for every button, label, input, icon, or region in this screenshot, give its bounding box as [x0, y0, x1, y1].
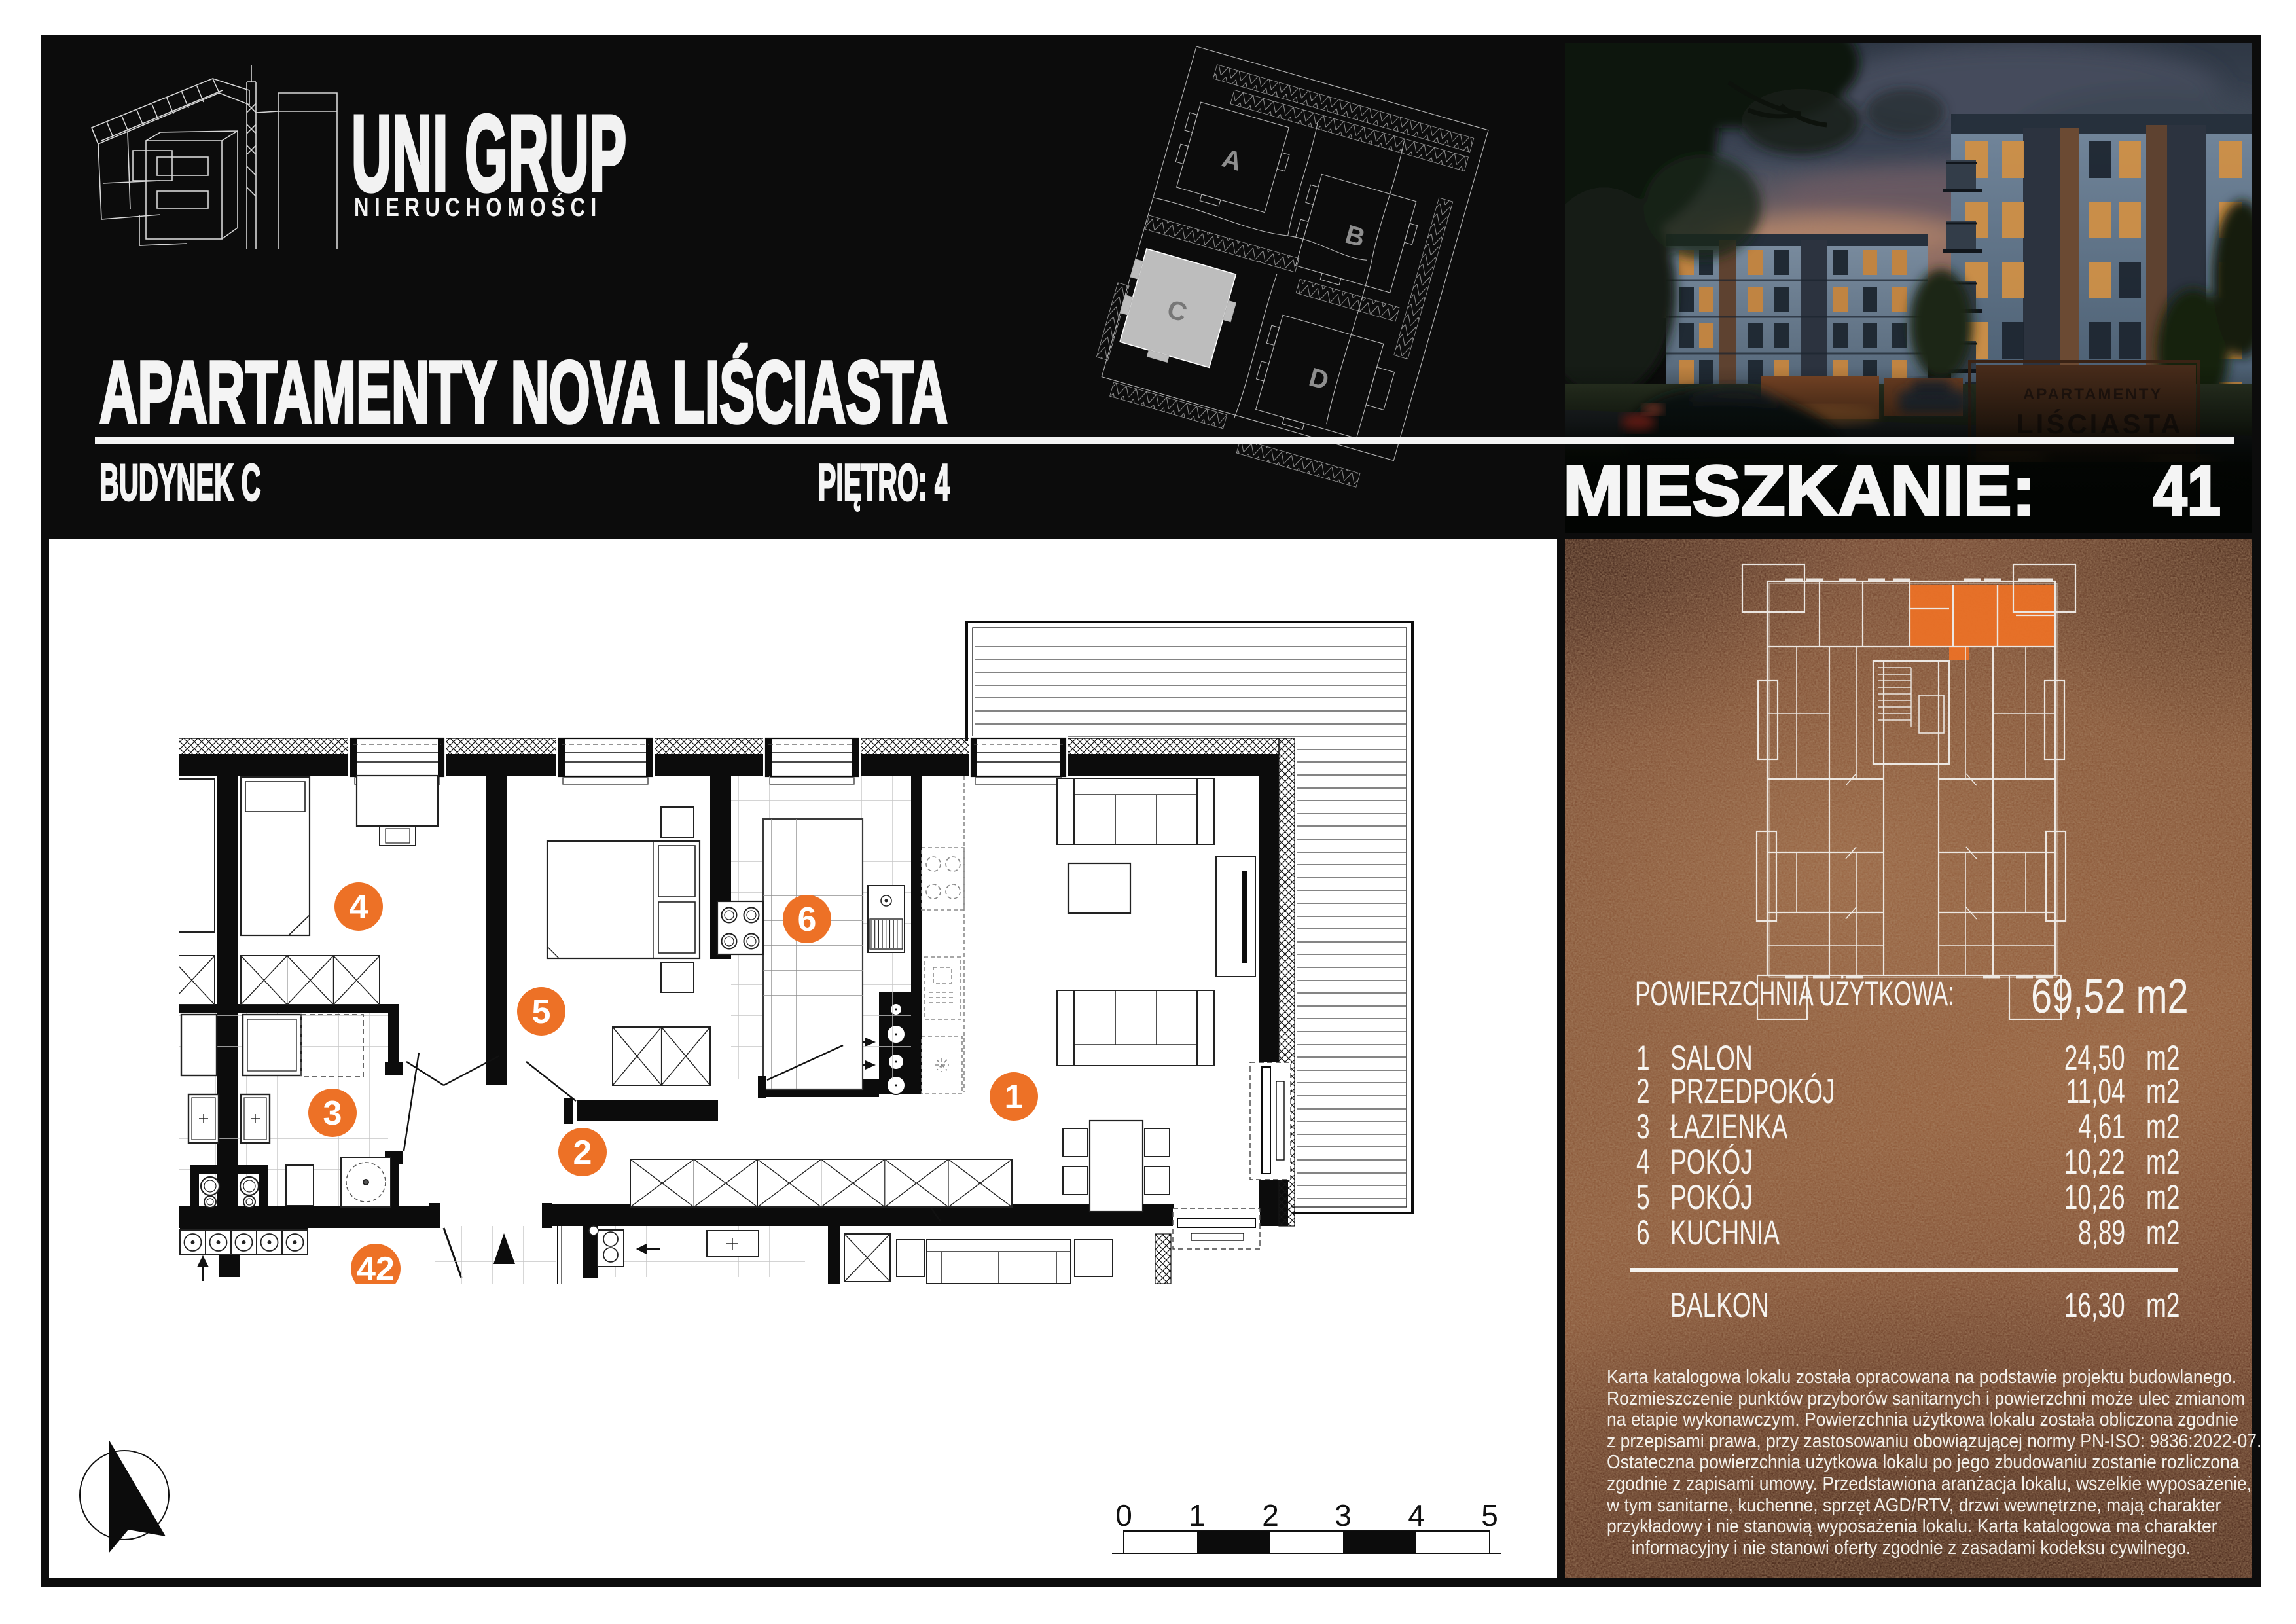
- svg-text:2: 2: [1262, 1498, 1279, 1532]
- svg-text:6: 6: [798, 901, 817, 939]
- svg-text:1: 1: [1189, 1498, 1206, 1532]
- svg-text:1: 1: [1005, 1078, 1024, 1116]
- svg-text:3: 3: [323, 1094, 342, 1132]
- svg-text:3: 3: [1335, 1498, 1352, 1532]
- svg-text:2: 2: [573, 1134, 592, 1172]
- svg-text:5: 5: [532, 993, 551, 1031]
- svg-text:5: 5: [1481, 1498, 1498, 1532]
- svg-text:42: 42: [357, 1250, 395, 1288]
- svg-text:0: 0: [1115, 1498, 1132, 1532]
- svg-text:4: 4: [350, 888, 368, 926]
- svg-text:4: 4: [1408, 1498, 1425, 1532]
